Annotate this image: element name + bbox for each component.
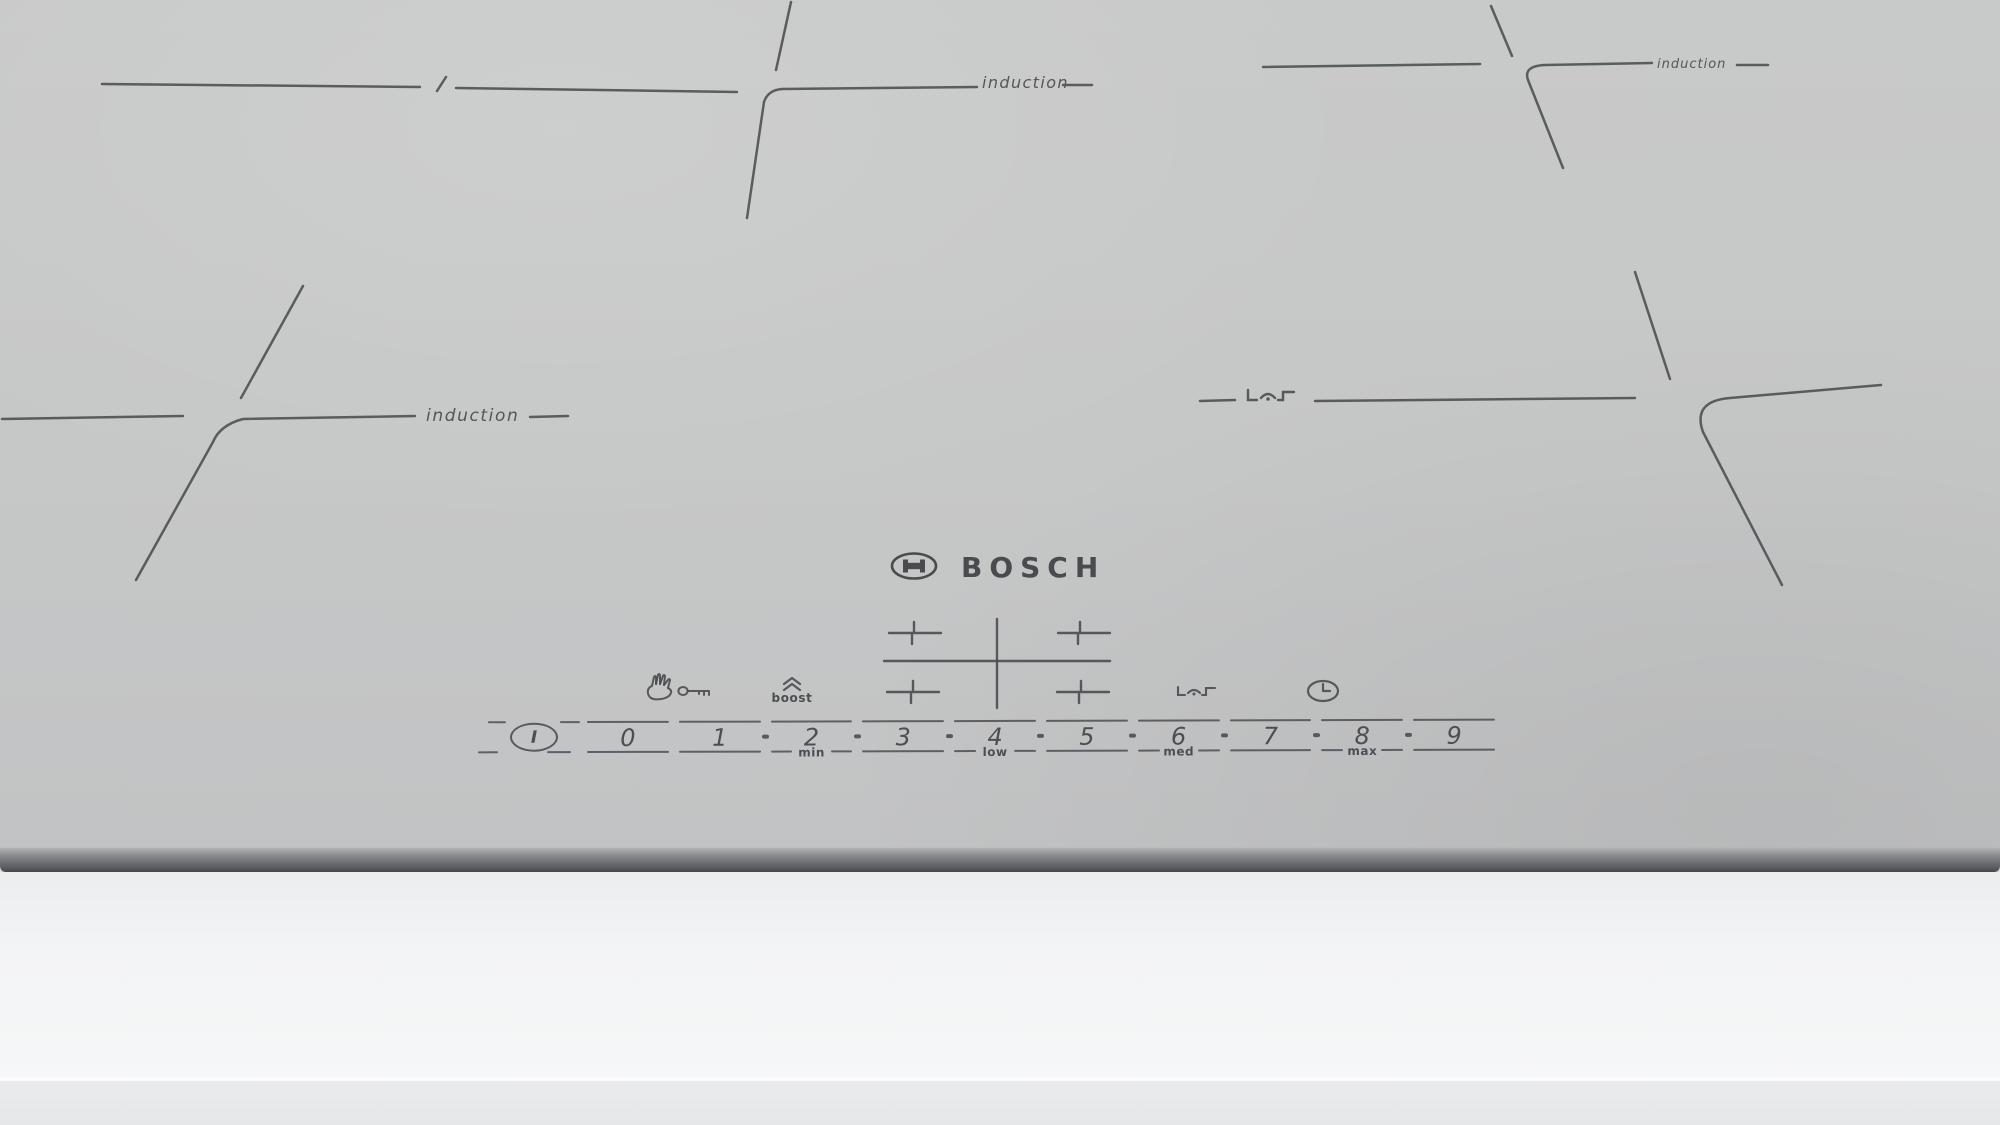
level-7[interactable]: 7 <box>1225 720 1317 750</box>
sublabel-low: low <box>949 745 1041 759</box>
zone-key-back-right[interactable] <box>1058 622 1110 644</box>
zone-select-cross[interactable] <box>884 619 1110 708</box>
power-level-slider[interactable]: I 0 1 2 min 3 <box>478 720 1500 753</box>
level-3[interactable]: 3 <box>857 721 949 751</box>
level-4[interactable]: 4 low <box>949 721 1041 751</box>
zone-marking-mid-right <box>1200 272 1881 585</box>
bosch-anchor-icon <box>892 554 936 579</box>
level-6[interactable]: 6 med <box>1133 720 1225 750</box>
bosch-logo-text: BOSCH <box>961 551 1105 584</box>
zone-label-top-right: induction <box>1657 57 1726 72</box>
zone-label-left: induction <box>426 406 519 426</box>
timer-clock-button[interactable] <box>1308 681 1338 701</box>
boost-chevrons-icon <box>781 677 803 692</box>
boost-label: boost <box>760 691 824 705</box>
power-oval: I <box>510 723 558 752</box>
level-5[interactable]: 5 <box>1041 721 1133 751</box>
child-lock-button[interactable] <box>648 674 709 699</box>
induction-mini-mark <box>437 77 446 91</box>
zone-marking-top-right: induction <box>1263 6 1768 168</box>
sublabel-min: min <box>766 745 858 759</box>
pan-sensor-key[interactable] <box>1178 687 1215 696</box>
sublabel-max: max <box>1316 744 1408 758</box>
power-button[interactable]: I <box>478 722 582 752</box>
hand-icon <box>648 674 671 699</box>
zone-key-front-left[interactable] <box>887 681 939 703</box>
level-9[interactable]: 9 <box>1408 720 1500 750</box>
zone-marking-left: induction <box>2 286 568 580</box>
cooktop-glass-surface: induction induction induction <box>0 0 2000 848</box>
countertop <box>0 872 2000 1125</box>
zone-marking-top-center: induction <box>747 2 1092 218</box>
level-0[interactable]: 0 <box>582 722 674 752</box>
zone-key-front-right[interactable] <box>1057 681 1109 703</box>
front-edge <box>0 848 2000 872</box>
key-icon <box>678 687 709 695</box>
bosch-logo: BOSCH <box>892 551 1105 584</box>
pan-sensor-icon <box>1248 390 1294 401</box>
counter-lower-band <box>0 1081 2000 1125</box>
clock-hands <box>1323 684 1330 691</box>
sublabel-med: med <box>1133 744 1225 758</box>
zone-marking-top-left <box>102 77 737 92</box>
level-8[interactable]: 8 max <box>1316 720 1408 750</box>
zone-key-back-left[interactable] <box>889 622 941 644</box>
level-1[interactable]: 1 <box>674 722 766 752</box>
level-2[interactable]: 2 min <box>766 721 858 751</box>
cooktop-product-photo: induction induction induction <box>0 0 2000 1125</box>
zone-label-top-center: induction <box>982 73 1069 92</box>
boost-button[interactable]: boost <box>760 677 824 705</box>
power-symbol: I <box>531 727 537 747</box>
